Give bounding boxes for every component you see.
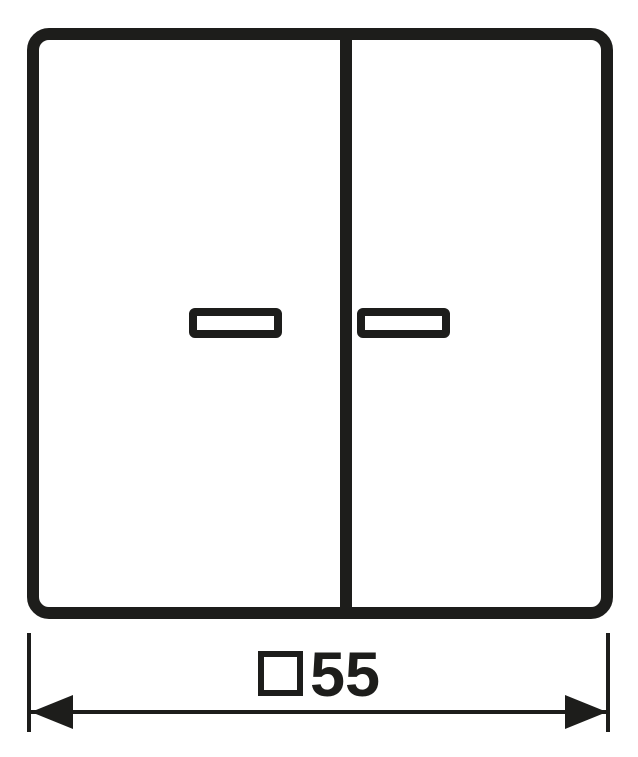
right-arrowhead-icon	[565, 695, 607, 729]
dimension-line	[31, 710, 607, 714]
left-indicator-window	[189, 308, 282, 338]
right-indicator-window	[357, 308, 450, 338]
switch-plate-outline	[27, 28, 613, 619]
left-arrowhead-icon	[31, 695, 73, 729]
dimension-drawing: 55	[0, 0, 638, 757]
dimension-value: 55	[310, 652, 380, 698]
rocker-divider-line	[340, 34, 352, 613]
square-symbol-icon	[258, 651, 303, 696]
